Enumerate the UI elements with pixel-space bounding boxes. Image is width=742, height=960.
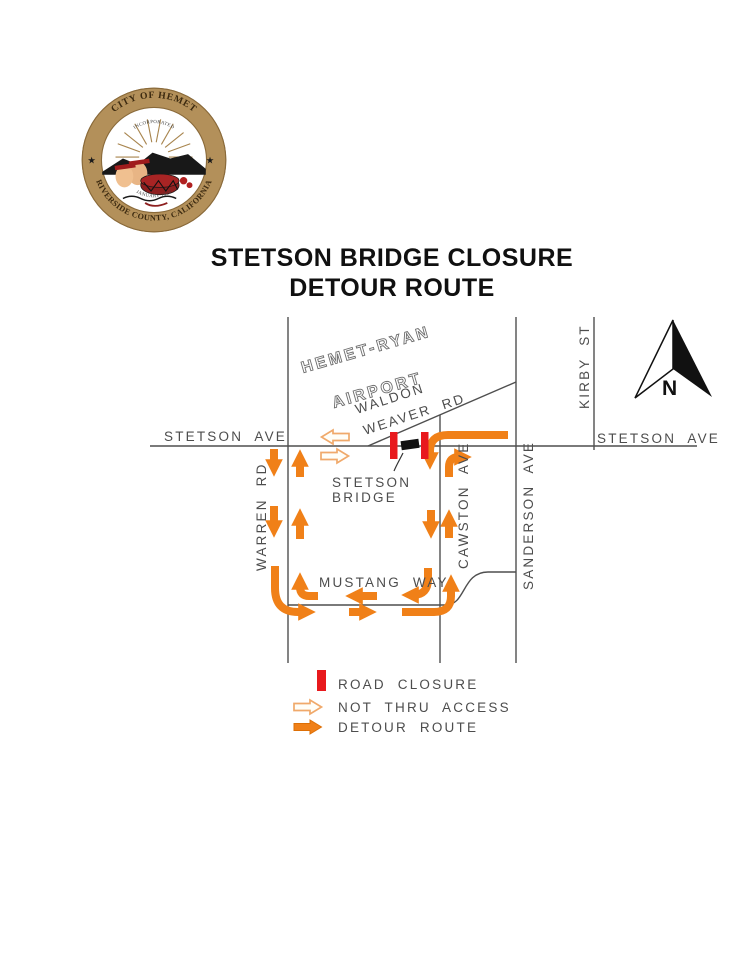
detour-route-map: STETSON AVE STETSON AVE WARREN RD CAWSTO…	[0, 0, 742, 960]
north-label: N	[662, 377, 677, 400]
cawston-ave-label: CAWSTON AVE	[456, 442, 471, 569]
stetson-ave-label-west: STETSON AVE	[164, 429, 287, 444]
detour-arrow-mustang-to-warren-turn	[300, 581, 318, 596]
road-closure-bar-west	[390, 432, 398, 459]
legend-detour-route-label: DETOUR ROUTE	[338, 720, 478, 735]
legend: ROAD CLOSURE NOT THRU ACCESS DETOUR ROUT…	[294, 670, 511, 735]
stetson-bridge-label-line2: BRIDGE	[332, 490, 397, 505]
legend-not-thru-swatch	[294, 700, 322, 714]
road-labels: STETSON AVE STETSON AVE WARREN RD CAWSTO…	[164, 324, 720, 590]
compass-filled-wing	[673, 320, 712, 397]
mustang-way-label: MUSTANG WAY	[319, 575, 449, 590]
detour-flyer-page: CITY OF HEMET RIVERSIDE COUNTY, CALIFORN…	[0, 0, 742, 960]
legend-road-closure-label: ROAD CLOSURE	[338, 677, 478, 692]
stetson-bridge-label-line1: STETSON	[332, 475, 411, 490]
legend-road-closure-swatch	[317, 670, 326, 691]
legend-detour-route-swatch	[294, 720, 322, 734]
warren-rd-label: WARREN RD	[254, 462, 269, 571]
kirby-st-label: KIRBY ST	[577, 324, 592, 409]
stetson-bridge-symbol	[401, 439, 420, 450]
north-compass: N	[635, 320, 712, 400]
not-thru-arrow-west	[322, 430, 350, 444]
road-closure-bar-east	[421, 432, 429, 459]
bridge-closure-group	[390, 432, 429, 471]
legend-not-thru-label: NOT THRU ACCESS	[338, 700, 511, 715]
sanderson-ave-label: SANDERSON AVE	[521, 441, 536, 590]
hemet-ryan-airport-label-line1: HEMET-RYAN	[299, 324, 432, 377]
not-thru-arrow-east	[321, 449, 349, 463]
stetson-ave-label-east: STETSON AVE	[597, 431, 720, 446]
